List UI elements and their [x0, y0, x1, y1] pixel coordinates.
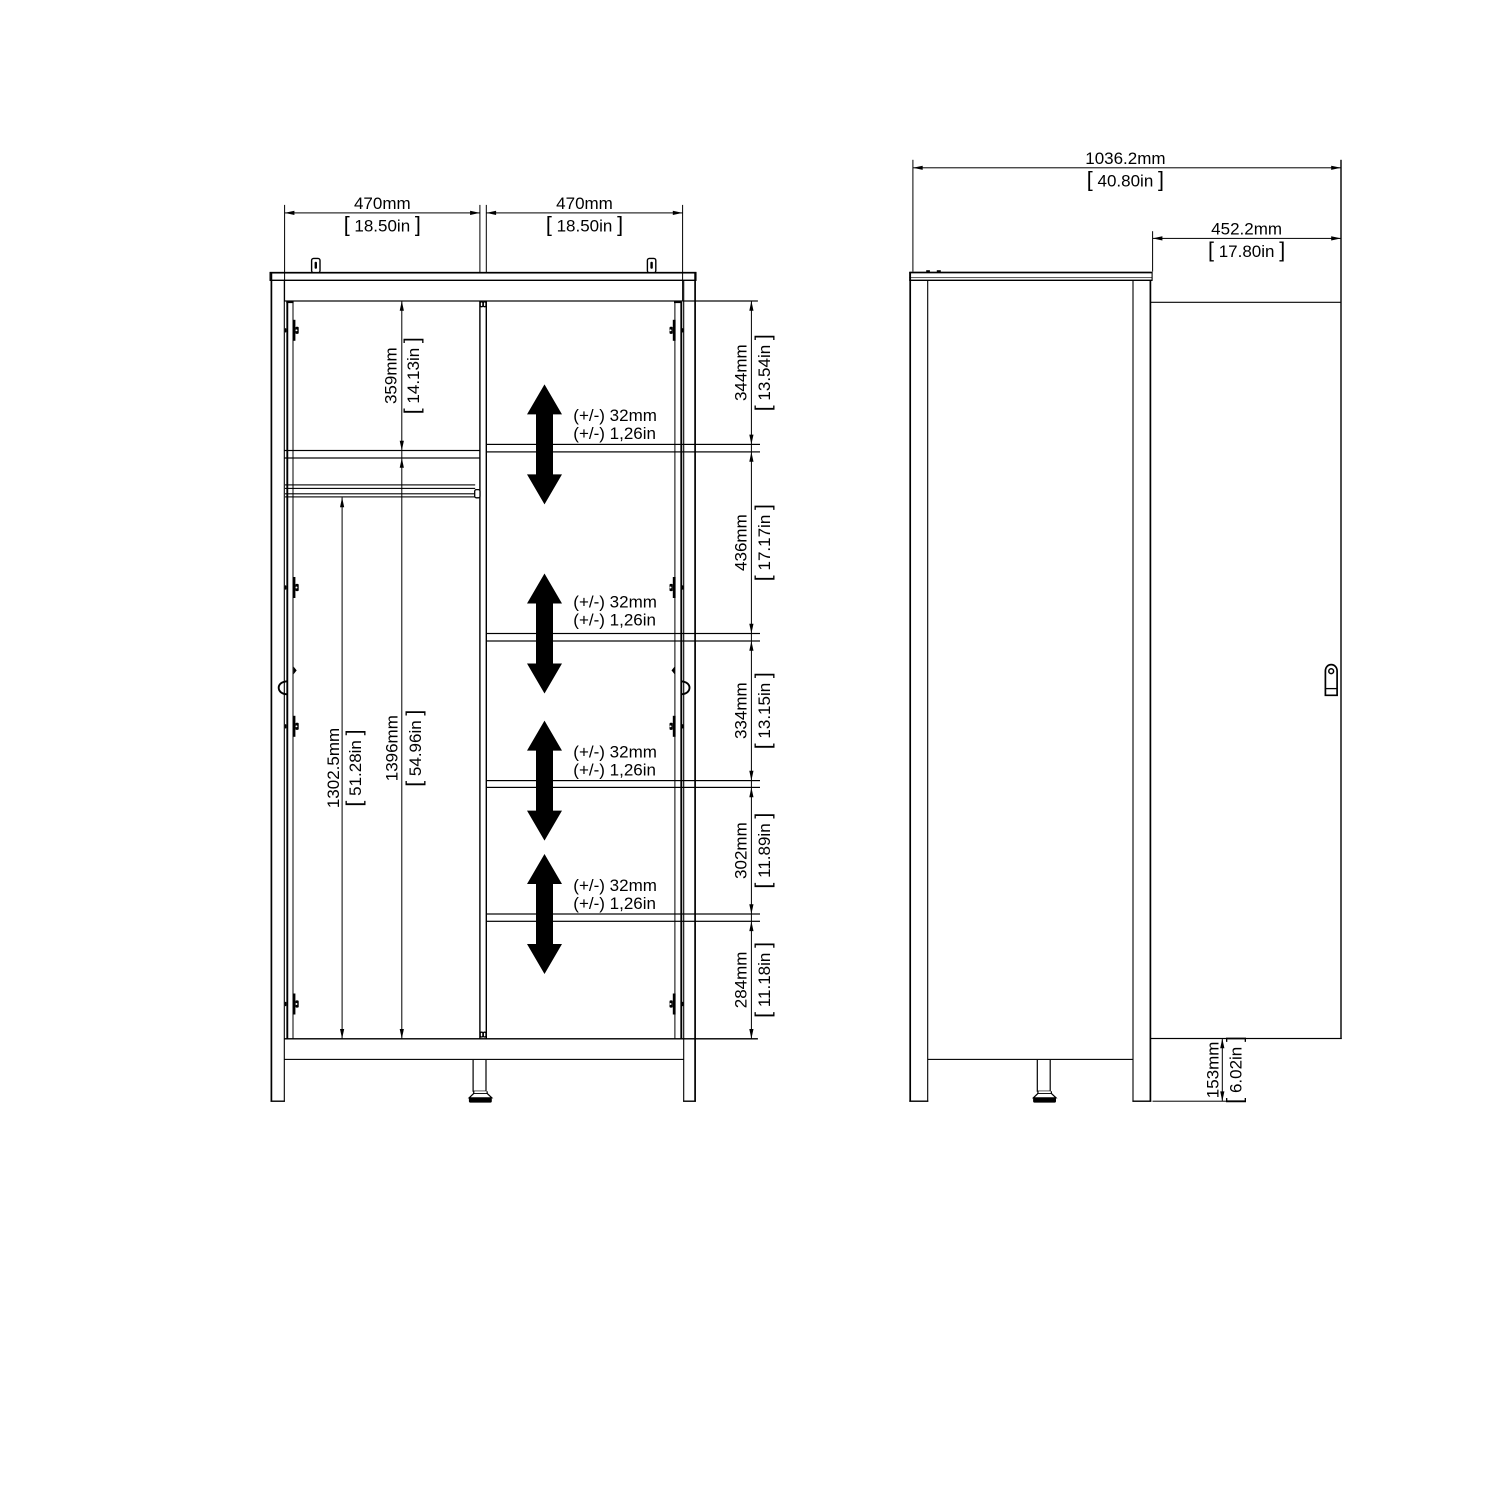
svg-text:[ 51.28in ]: [ 51.28in ]: [342, 729, 366, 806]
svg-text:153mm: 153mm: [1204, 1042, 1223, 1099]
svg-text:334mm: 334mm: [731, 682, 750, 739]
svg-text:1036.2mm: 1036.2mm: [1085, 149, 1165, 168]
svg-text:(+/-) 1,26in: (+/-) 1,26in: [573, 760, 656, 779]
svg-text:[ 18.50in ]: [ 18.50in ]: [546, 213, 623, 237]
svg-text:452.2mm: 452.2mm: [1211, 219, 1282, 238]
svg-text:1302.5mm: 1302.5mm: [324, 728, 343, 808]
svg-text:359mm: 359mm: [382, 347, 401, 404]
svg-text:[ 54.96in ]: [ 54.96in ]: [402, 710, 426, 787]
svg-text:470mm: 470mm: [556, 194, 613, 213]
svg-text:344mm: 344mm: [731, 344, 750, 401]
svg-text:(+/-) 32mm: (+/-) 32mm: [573, 742, 657, 761]
svg-text:(+/-) 1,26in: (+/-) 1,26in: [573, 894, 656, 913]
svg-text:284mm: 284mm: [731, 952, 750, 1009]
svg-text:[ 18.50in ]: [ 18.50in ]: [344, 213, 421, 237]
svg-text:(+/-) 32mm: (+/-) 32mm: [573, 876, 657, 895]
svg-text:(+/-) 1,26in: (+/-) 1,26in: [573, 611, 656, 630]
svg-text:302mm: 302mm: [731, 822, 750, 879]
svg-text:[ 11.18in ]: [ 11.18in ]: [751, 942, 775, 1018]
svg-text:[ 13.54in ]: [ 13.54in ]: [751, 334, 775, 411]
svg-text:(+/-) 32mm: (+/-) 32mm: [573, 593, 657, 612]
svg-text:[ 13.15in ]: [ 13.15in ]: [751, 672, 775, 749]
svg-text:[ 17.17in ]: [ 17.17in ]: [751, 504, 775, 581]
svg-text:[ 11.89in ]: [ 11.89in ]: [751, 813, 775, 889]
svg-text:470mm: 470mm: [354, 194, 411, 213]
svg-text:(+/-) 32mm: (+/-) 32mm: [573, 406, 657, 425]
svg-text:1396mm: 1396mm: [382, 715, 401, 781]
svg-text:(+/-) 1,26in: (+/-) 1,26in: [573, 424, 656, 443]
svg-text:436mm: 436mm: [731, 514, 750, 571]
svg-text:[ 40.80in ]: [ 40.80in ]: [1087, 168, 1164, 192]
svg-text:[ 14.13in ]: [ 14.13in ]: [400, 337, 424, 414]
svg-text:[ 17.80in ]: [ 17.80in ]: [1208, 238, 1285, 262]
svg-text:[ 6.02in ]: [ 6.02in ]: [1223, 1036, 1247, 1104]
